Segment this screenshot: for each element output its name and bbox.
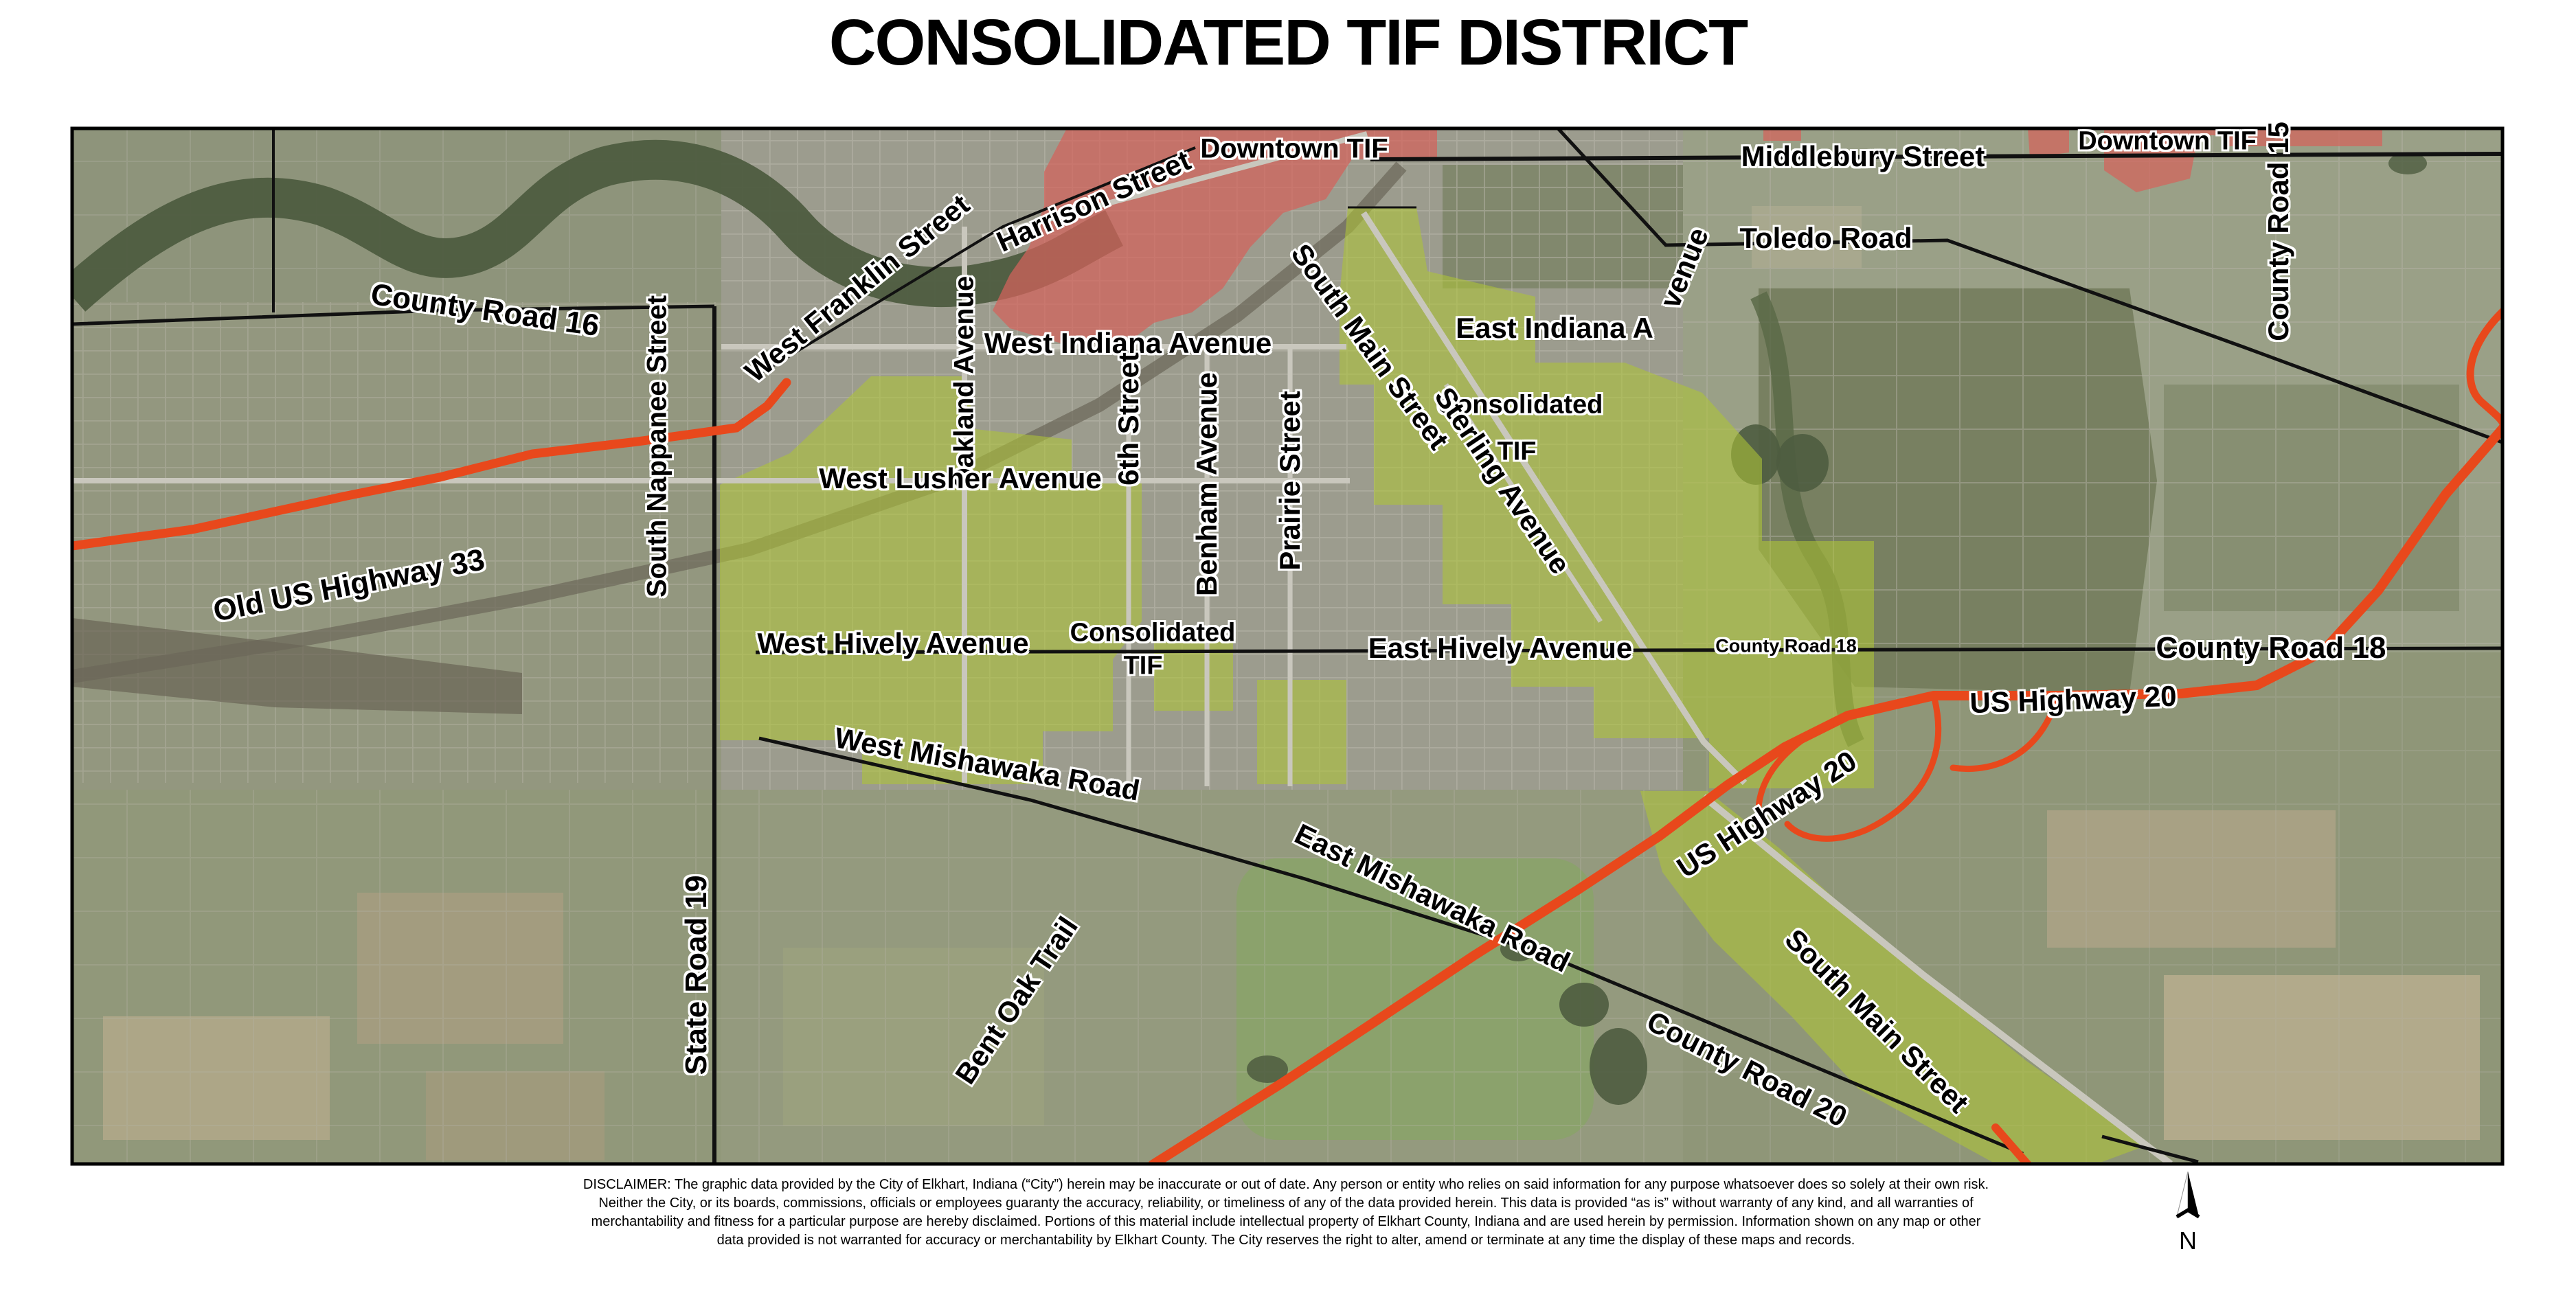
street-label-oakland-avenue: Oakland Avenue [949, 276, 980, 489]
tif-polygon-patch2 [1257, 680, 1346, 784]
disclaimer-line-1: DISCLAIMER: The graphic data provided by… [290, 1176, 2282, 1194]
area-label-downtown-tif-west: Downtown TIF [1200, 134, 1388, 165]
street-label-benham-avenue: Benham Avenue [1190, 372, 1223, 596]
street-label-west-lusher-avenue: West Lusher Avenue [819, 462, 1102, 495]
north-arrow-label: N [2160, 1226, 2215, 1255]
disclaimer-line-3: merchantability and fitness for a partic… [290, 1213, 2282, 1231]
street-label-county-road-18-small: County Road 18 [1715, 636, 1857, 657]
disclaimer-line-4: data provided is not warranted for accur… [290, 1231, 2282, 1250]
street-label-toledo-road: Toledo Road [1739, 222, 1912, 255]
street-label-prairie-street: Prairie Street [1274, 391, 1307, 570]
street-label-east-indiana-avenue: East Indiana A [1456, 312, 1653, 345]
street-label-south-nappanee-street: South Nappanee Street [642, 295, 673, 597]
street-label-state-road-19: State Road 19 [679, 876, 714, 1075]
downtown-tif-patch1 [1763, 128, 1801, 141]
north-arrow: N [2160, 1169, 2215, 1255]
street-label-6th-street: 6th Street [1112, 352, 1145, 485]
street-label-middlebury-street: Middlebury Street [1741, 140, 1985, 173]
street-label-west-hively-avenue: West Hively Avenue [757, 627, 1028, 660]
area-label-consolidated-tif-south-line2: TIF [1124, 652, 1163, 681]
map-canvas: County Road 16 Old US Highway 33 South N… [0, 0, 2576, 1288]
area-label-consolidated-tif-south-line1: Consolidated [1070, 619, 1236, 648]
north-arrow-icon [2164, 1169, 2212, 1227]
street-label-county-road-18-large: County Road 18 [2156, 631, 2386, 665]
area-label-downtown-tif-east: Downtown TIF [2078, 127, 2257, 157]
disclaimer: DISCLAIMER: The graphic data provided by… [290, 1176, 2282, 1250]
disclaimer-line-2: Neither the City, or its boards, commiss… [290, 1194, 2282, 1213]
street-label-county-road-15: County Road 15 [2262, 122, 2295, 341]
street-label-east-hively-avenue: East Hively Avenue [1368, 632, 1632, 665]
